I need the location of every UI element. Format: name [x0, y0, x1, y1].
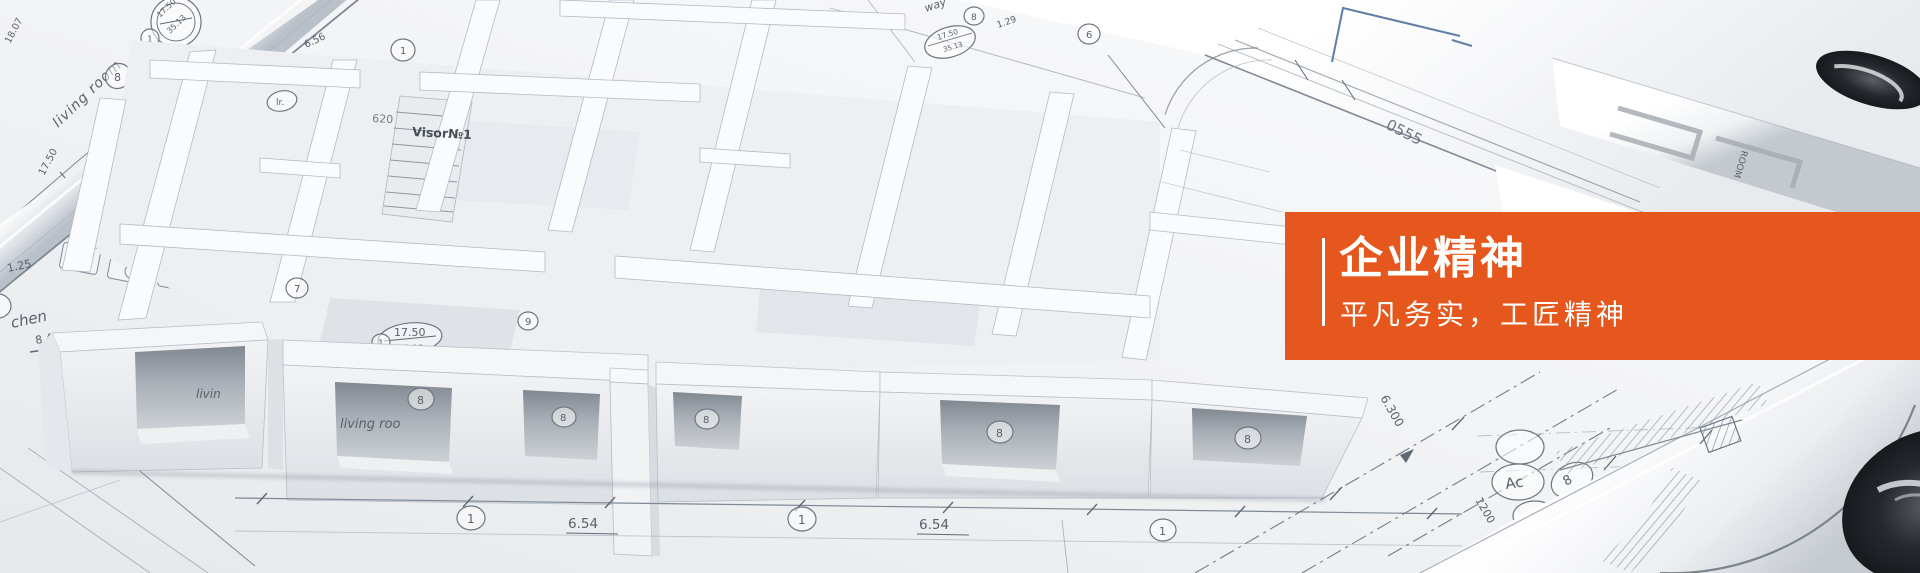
- floor-area-1750: 17.50: [394, 326, 426, 339]
- dim-bubble-1b: 1: [798, 513, 806, 527]
- slogan-title: 企业精神: [1339, 236, 1527, 282]
- window-bubble-8d: 8: [996, 427, 1003, 440]
- dim-bubble-1a: 1: [467, 512, 475, 526]
- window-bubble-8c: 8: [703, 415, 709, 426]
- floor-bubble-7: 7: [294, 284, 300, 295]
- grid-bubble-6: 6: [1086, 30, 1092, 41]
- window-living-label: livin: [196, 387, 221, 401]
- dim-bubble-1c: 1: [1159, 525, 1166, 538]
- window-bubble-8b: 8: [560, 413, 566, 424]
- label-lr: lr.: [276, 98, 284, 108]
- roll-bubble-8: 8: [114, 71, 121, 84]
- window-bubble-8a: 8: [417, 394, 424, 407]
- hero-banner: 0555 way 8 1.29 17.50 35.13 6 living roo…: [0, 0, 1920, 573]
- grid-ac-label: Ac: [1504, 473, 1525, 493]
- window-bubble-8e: 8: [1244, 433, 1251, 446]
- slogan-panel: 企业精神 平凡务实，工匠精神: [1285, 212, 1920, 360]
- room-bubble: 8: [971, 13, 977, 23]
- accent-bar: [1322, 238, 1325, 326]
- dim-654-a: 6.54: [568, 516, 598, 532]
- stamp-visor: Visor№1: [412, 124, 472, 142]
- top-bubble-1: 1: [400, 46, 406, 57]
- window-living-room: living roo: [340, 417, 400, 432]
- floor-bubble-9: 9: [525, 317, 531, 328]
- dim-654-b: 6.54: [919, 517, 949, 533]
- slogan-subtitle: 平凡务实，工匠精神: [1340, 300, 1628, 330]
- stamp-620: 620: [372, 112, 394, 126]
